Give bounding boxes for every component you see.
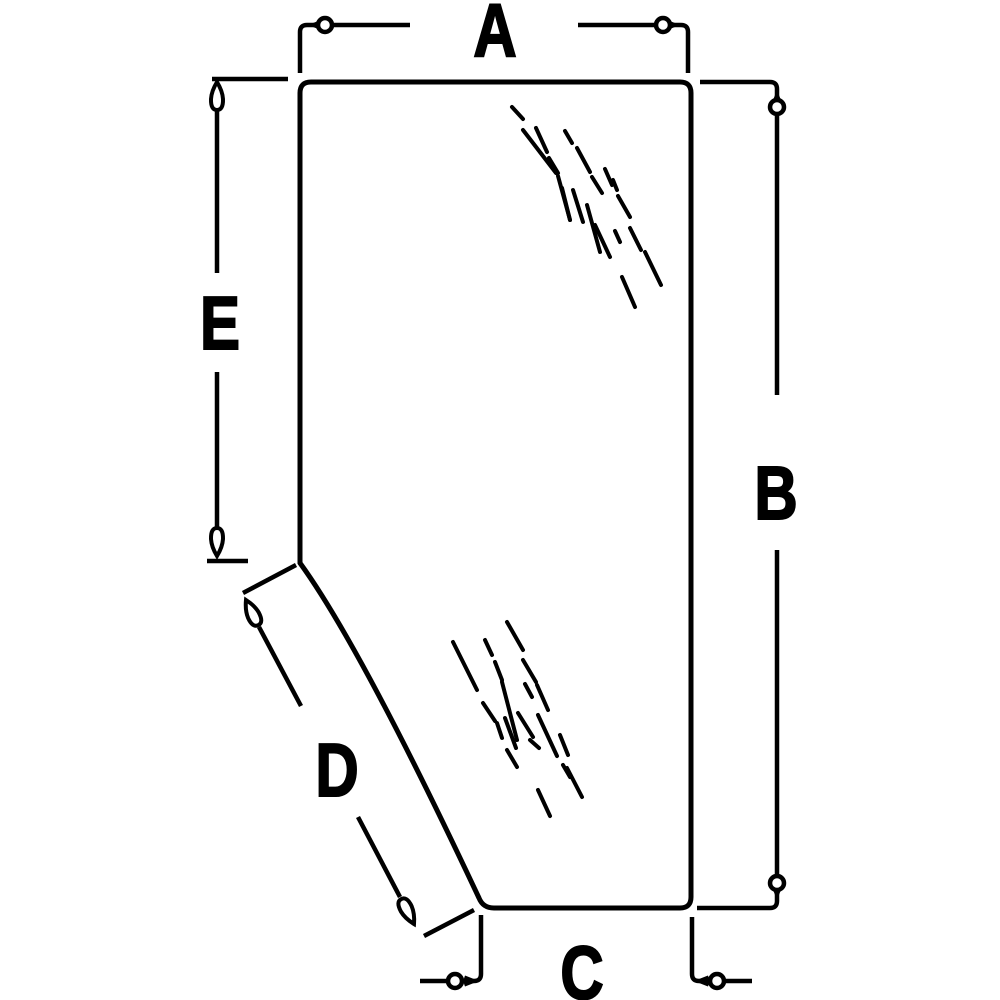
- dimension-teardrop-arrow: [211, 82, 223, 110]
- dimension-end-circle: [710, 974, 724, 988]
- dim-label-e: E: [200, 283, 240, 366]
- dim-label-a: A: [473, 0, 516, 73]
- dimension-end-circle: [770, 876, 784, 890]
- dimension-teardrop-arrow: [396, 896, 419, 926]
- dim-label-d: D: [315, 730, 358, 813]
- dimension-teardrop-arrow: [241, 597, 264, 627]
- dim-label-c: C: [560, 933, 603, 1000]
- diagram-canvas: A B C D E: [0, 0, 1000, 1000]
- dimension-end-circle: [448, 974, 462, 988]
- lower-glass-shine-hatching: [453, 622, 582, 816]
- dimension-end-circle: [318, 18, 332, 32]
- glass-dimension-diagram: A B C D E: [0, 0, 1000, 1000]
- dimension-arrow-tick: [464, 976, 479, 987]
- dimension-arrow-tick: [694, 976, 709, 987]
- dimension-end-circle: [770, 100, 784, 114]
- dimension-end-circle: [656, 18, 670, 32]
- dimension-teardrop-arrow: [211, 528, 223, 556]
- dim-label-b: B: [754, 453, 797, 536]
- upper-glass-shine-hatching: [512, 107, 661, 307]
- diagram-geometry: [207, 18, 784, 988]
